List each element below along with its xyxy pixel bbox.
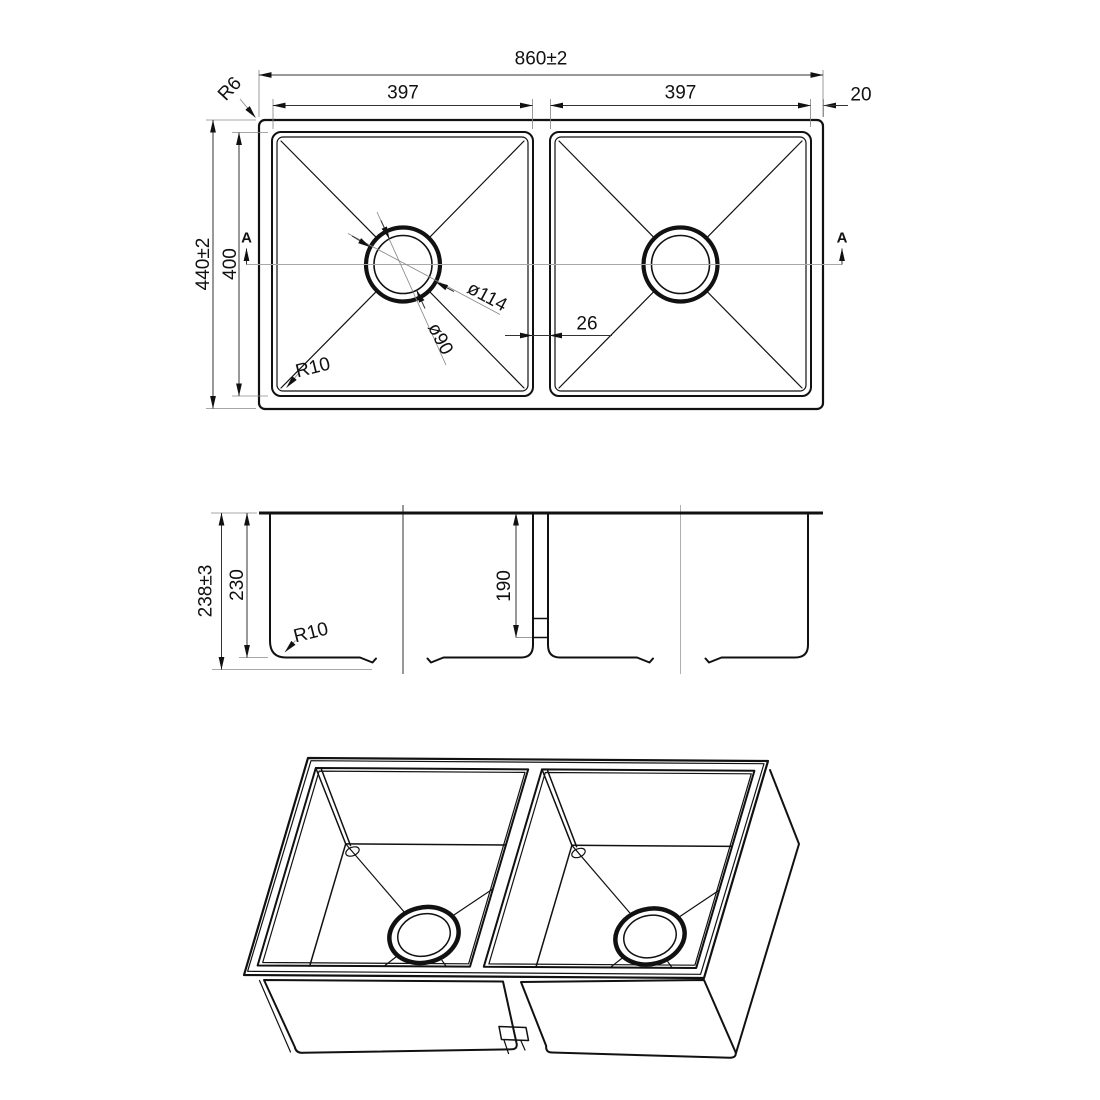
section-label-right: A <box>837 230 848 247</box>
plan-overall-width-extension-lines <box>259 70 823 117</box>
section-r10-leader <box>285 641 296 653</box>
plan-bowl-width-extension-lines <box>273 99 824 129</box>
dim-section-overall-depth: 238±3 <box>196 565 217 618</box>
dim-right-bowl-width: 397 <box>665 83 697 104</box>
iso-right-bowl-bottom-left-edge <box>536 845 572 967</box>
section-divider-bottom <box>533 619 548 638</box>
iso-right-bowl-bottom-back-edge <box>572 845 732 846</box>
dim-divider-width: 26 <box>576 314 597 335</box>
iso-right-box-front <box>521 980 736 1058</box>
section-divider-and-right-bowl-left <box>548 513 653 663</box>
dim-bowl-corner-radius: R10 <box>294 354 333 383</box>
dim-section-bowl-depth: 230 <box>227 569 248 601</box>
sink-drawing-svg: 860±2 397 397 20 440±2 400 R6 R10 ø114 ø… <box>0 0 1100 1100</box>
dim-bowl-depth: 400 <box>220 248 241 280</box>
plan-r6-leader <box>240 99 256 118</box>
dim-overall-depth: 440±2 <box>193 238 214 291</box>
iso-left-box-front <box>264 980 517 1053</box>
plan-drain-outer-arrow-1 <box>352 236 370 247</box>
dim-overall-width: 860±2 <box>515 49 568 70</box>
section-label-left: A <box>241 230 252 247</box>
iso-left-bowl-corner-fold <box>316 768 351 846</box>
dim-edge-width: 20 <box>850 85 871 106</box>
iso-left-drain-outer <box>383 900 464 970</box>
section-left-bowl-right <box>428 513 534 663</box>
iso-right-side-face <box>736 770 799 1053</box>
dim-section-divider-depth: 190 <box>494 570 515 602</box>
section-view: 238±3 230 190 R10 <box>196 505 824 674</box>
dim-section-bottom-radius: R10 <box>292 619 331 648</box>
iso-left-bowl-bottom-back-edge <box>346 844 506 845</box>
iso-left-bowl-bottom-left-edge <box>310 844 346 966</box>
iso-rim-outer <box>244 758 768 978</box>
iso-divider-channel-lines <box>504 1040 525 1054</box>
iso-right-drain-outer <box>609 901 690 971</box>
section-right-bowl-right <box>706 513 809 663</box>
dim-drain-outer-dia: ø114 <box>464 278 511 316</box>
dim-left-bowl-width: 397 <box>387 83 419 104</box>
technical-drawing-page: 860±2 397 397 20 440±2 400 R6 R10 ø114 ø… <box>0 0 1100 1100</box>
isometric-view <box>244 758 799 1058</box>
plan-drain-outer-arrow-2 <box>436 282 454 292</box>
iso-left-box-left-edge <box>260 981 291 1053</box>
iso-right-bowl-corner-fold <box>542 769 577 846</box>
plan-view: 860±2 397 397 20 440±2 400 R6 R10 ø114 ø… <box>193 49 872 410</box>
